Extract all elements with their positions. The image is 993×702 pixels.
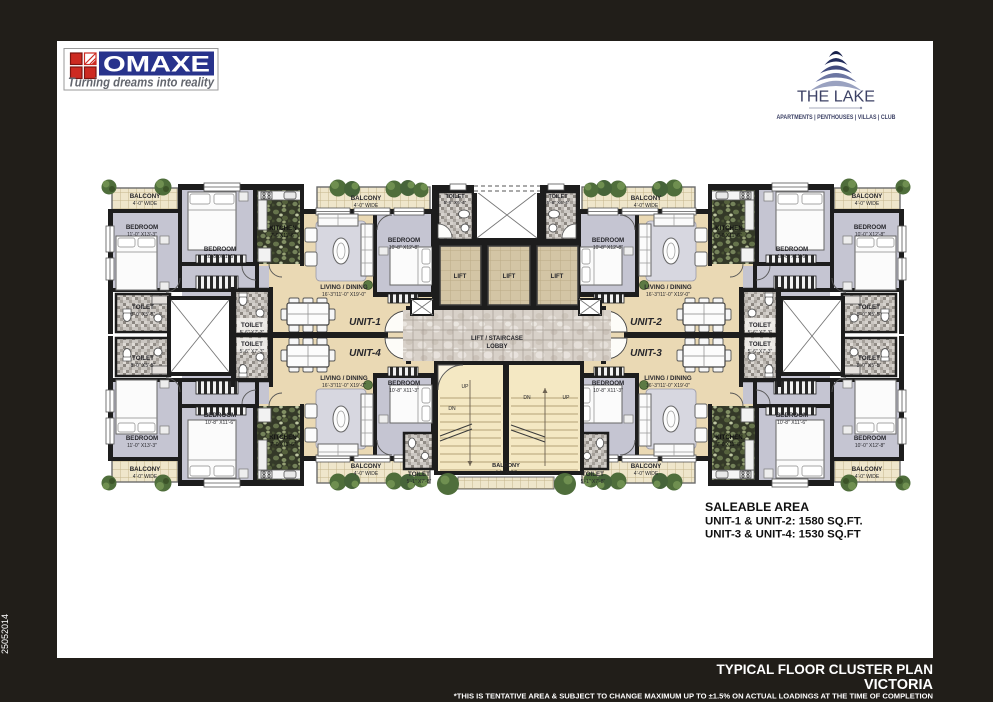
- svg-text:KITCHEN: KITCHEN: [715, 225, 743, 232]
- svg-text:4'-0" WIDE: 4'-0" WIDE: [133, 474, 158, 480]
- svg-text:BEDROOM: BEDROOM: [388, 380, 420, 387]
- svg-text:TOILET: TOILET: [749, 341, 771, 348]
- svg-text:10'-8" X11'-6": 10'-8" X11'-6": [205, 420, 235, 426]
- svg-text:Turning dreams into reality: Turning dreams into reality: [68, 75, 215, 90]
- svg-text:8'-0" X5'-5": 8'-0" X5'-5": [131, 363, 156, 369]
- svg-text:UNIT-3: UNIT-3: [630, 348, 662, 359]
- svg-text:BEDROOM: BEDROOM: [126, 224, 158, 231]
- svg-text:LIVING / DINING: LIVING / DINING: [644, 375, 692, 382]
- svg-text:8'-0" X5'-5": 8'-0" X5'-5": [857, 312, 882, 318]
- svg-text:BALCONY: BALCONY: [130, 466, 161, 473]
- svg-text:5'-6" X7'-3": 5'-6" X7'-3": [240, 330, 265, 336]
- svg-text:5'-6" X7'-3": 5'-6" X7'-3": [748, 349, 773, 355]
- svg-text:BALCONY: BALCONY: [130, 193, 161, 200]
- svg-text:7'-0 X11'-6": 7'-0 X11'-6": [716, 233, 741, 239]
- svg-text:BALCONY: BALCONY: [631, 195, 662, 202]
- svg-text:TOILET: TOILET: [749, 322, 771, 329]
- svg-text:BALCONY: BALCONY: [852, 466, 883, 473]
- svg-text:BEDROOM: BEDROOM: [776, 412, 808, 419]
- svg-text:10'-8" X12'-8": 10'-8" X12'-8": [389, 245, 419, 251]
- svg-text:TYPICAL FLOOR CLUSTER PLAN: TYPICAL FLOOR CLUSTER PLAN: [716, 662, 933, 677]
- svg-text:7'-0 X11'-6": 7'-0 X11'-6": [270, 233, 295, 239]
- svg-text:LIFT: LIFT: [503, 274, 516, 280]
- svg-text:10'-8" X11'-6": 10'-8" X11'-6": [777, 254, 807, 260]
- svg-text:DN: DN: [523, 395, 531, 401]
- svg-text:4'-0" WIDE: 4'-0" WIDE: [133, 201, 158, 207]
- svg-text:4'-0" WIDE: 4'-0" WIDE: [634, 471, 659, 477]
- svg-text:KITCHEN: KITCHEN: [269, 434, 297, 441]
- svg-text:UNIT-1 & UNIT-2: 1580 SQ.FT.: UNIT-1 & UNIT-2: 1580 SQ.FT.: [705, 516, 863, 528]
- svg-text:APARTMENTS | PENTHOUSES | VILL: APARTMENTS | PENTHOUSES | VILLAS | CLUB: [777, 115, 897, 121]
- svg-text:10'-0" X12'-8": 10'-0" X12'-8": [855, 232, 885, 238]
- svg-text:10'-0" X12'-8": 10'-0" X12'-8": [855, 443, 885, 449]
- svg-text:TOILET: TOILET: [132, 304, 154, 311]
- svg-text:LIVING / DINING: LIVING / DINING: [644, 284, 692, 291]
- svg-text:5'-1" X7'-8": 5'-1" X7'-8": [407, 479, 432, 485]
- svg-text:10'-8" X11'-6": 10'-8" X11'-6": [205, 254, 235, 260]
- svg-text:5'-1" X7'-8": 5'-1" X7'-8": [581, 479, 606, 485]
- svg-text:11'-0" X13'-3": 11'-0" X13'-3": [127, 232, 157, 238]
- svg-text:4'-0" WIDE: 4'-0" WIDE: [855, 474, 880, 480]
- svg-text:BEDROOM: BEDROOM: [776, 246, 808, 253]
- svg-text:DN: DN: [448, 406, 456, 412]
- svg-text:8'-0" X5'-5": 8'-0" X5'-5": [857, 363, 882, 369]
- svg-text:BEDROOM: BEDROOM: [592, 237, 624, 244]
- svg-text:BALCONY: BALCONY: [351, 463, 382, 470]
- svg-text:BEDROOM: BEDROOM: [854, 224, 886, 231]
- svg-text:7'-0 X11'-6": 7'-0 X11'-6": [716, 442, 741, 448]
- svg-text:OMAXE: OMAXE: [103, 52, 210, 77]
- svg-text:SALEABLE AREA: SALEABLE AREA: [705, 500, 809, 514]
- svg-text:10'-8" X11'-3": 10'-8" X11'-3": [389, 388, 419, 394]
- svg-text:UNIT-2: UNIT-2: [630, 317, 662, 328]
- svg-text:5'-6" X7'-3": 5'-6" X7'-3": [240, 349, 265, 355]
- svg-text:BALCONY: BALCONY: [852, 193, 883, 200]
- svg-text:4'-0" WIDE: 4'-0" WIDE: [495, 470, 517, 475]
- svg-text:BALCONY: BALCONY: [351, 195, 382, 202]
- svg-text:BEDROOM: BEDROOM: [204, 246, 236, 253]
- svg-text:4'-0" WIDE: 4'-0" WIDE: [634, 203, 659, 209]
- svg-text:16'-3"/11'-0" X19'-0": 16'-3"/11'-0" X19'-0": [646, 383, 690, 389]
- svg-text:4'-0" WIDE: 4'-0" WIDE: [855, 201, 880, 207]
- svg-text:UP: UP: [563, 395, 571, 401]
- svg-text:BEDROOM: BEDROOM: [126, 435, 158, 442]
- svg-text:TOILET: TOILET: [132, 355, 154, 362]
- svg-text:TOILET: TOILET: [858, 355, 880, 362]
- svg-text:KITCHEN: KITCHEN: [715, 434, 743, 441]
- svg-text:25052014: 25052014: [0, 614, 10, 654]
- svg-text:7'-0 X11'-6": 7'-0 X11'-6": [270, 442, 295, 448]
- svg-text:TOILET: TOILET: [582, 471, 604, 478]
- svg-text:BEDROOM: BEDROOM: [388, 237, 420, 244]
- svg-text:16'-3"/11'-0" X19'-0": 16'-3"/11'-0" X19'-0": [646, 292, 690, 298]
- svg-text:4'-0" WIDE: 4'-0" WIDE: [354, 203, 379, 209]
- svg-text:8'-0" X5'-5": 8'-0" X5'-5": [131, 312, 156, 318]
- svg-text:TOILET: TOILET: [241, 341, 263, 348]
- svg-text:10'-8" X11'-6": 10'-8" X11'-6": [777, 420, 807, 426]
- svg-text:LIFT / STAIRCASE: LIFT / STAIRCASE: [471, 336, 523, 342]
- svg-text:UP: UP: [462, 384, 470, 390]
- svg-text:UNIT-1: UNIT-1: [349, 317, 381, 328]
- svg-text:KITCHEN: KITCHEN: [269, 225, 297, 232]
- svg-text:BEDROOM: BEDROOM: [592, 380, 624, 387]
- svg-text:10'-8" X12'-8": 10'-8" X12'-8": [593, 245, 623, 251]
- svg-text:LIVING / DINING: LIVING / DINING: [320, 284, 368, 291]
- svg-text:4'-0" WIDE: 4'-0" WIDE: [354, 471, 379, 477]
- svg-text:UNIT-4: UNIT-4: [349, 348, 381, 359]
- svg-text:16'-3"/11'-0" X19'-0": 16'-3"/11'-0" X19'-0": [322, 292, 366, 298]
- svg-text:5'-8" X6'-4": 5'-8" X6'-4": [547, 200, 570, 205]
- svg-text:10'-8" X11'-3": 10'-8" X11'-3": [593, 388, 623, 394]
- svg-text:LIFT: LIFT: [551, 274, 564, 280]
- svg-text:LIVING / DINING: LIVING / DINING: [320, 375, 368, 382]
- svg-text:5'-8" X6'-4": 5'-8" X6'-4": [444, 200, 467, 205]
- svg-text:BALCONY: BALCONY: [492, 463, 520, 469]
- svg-text:LIFT: LIFT: [454, 274, 467, 280]
- svg-text:LOBBY: LOBBY: [487, 344, 508, 350]
- svg-text:BEDROOM: BEDROOM: [854, 435, 886, 442]
- svg-text:16'-3"/11'-0" X19'-0": 16'-3"/11'-0" X19'-0": [322, 383, 366, 389]
- svg-text:TOILET: TOILET: [858, 304, 880, 311]
- svg-text:BEDROOM: BEDROOM: [204, 412, 236, 419]
- svg-text:TOILET: TOILET: [241, 322, 263, 329]
- svg-text:UNIT-3 & UNIT-4: 1530 SQ.FT: UNIT-3 & UNIT-4: 1530 SQ.FT: [705, 529, 861, 541]
- svg-text:TOILET: TOILET: [408, 471, 430, 478]
- svg-text:11'-0" X13'-3": 11'-0" X13'-3": [127, 443, 157, 449]
- svg-text:BALCONY: BALCONY: [631, 463, 662, 470]
- svg-text:5'-6" X7'-3": 5'-6" X7'-3": [748, 330, 773, 336]
- svg-text:THE LAKE: THE LAKE: [797, 89, 875, 106]
- svg-text:*THIS IS TENTATIVE AREA & SUBJ: *THIS IS TENTATIVE AREA & SUBJECT TO CHA…: [454, 692, 933, 701]
